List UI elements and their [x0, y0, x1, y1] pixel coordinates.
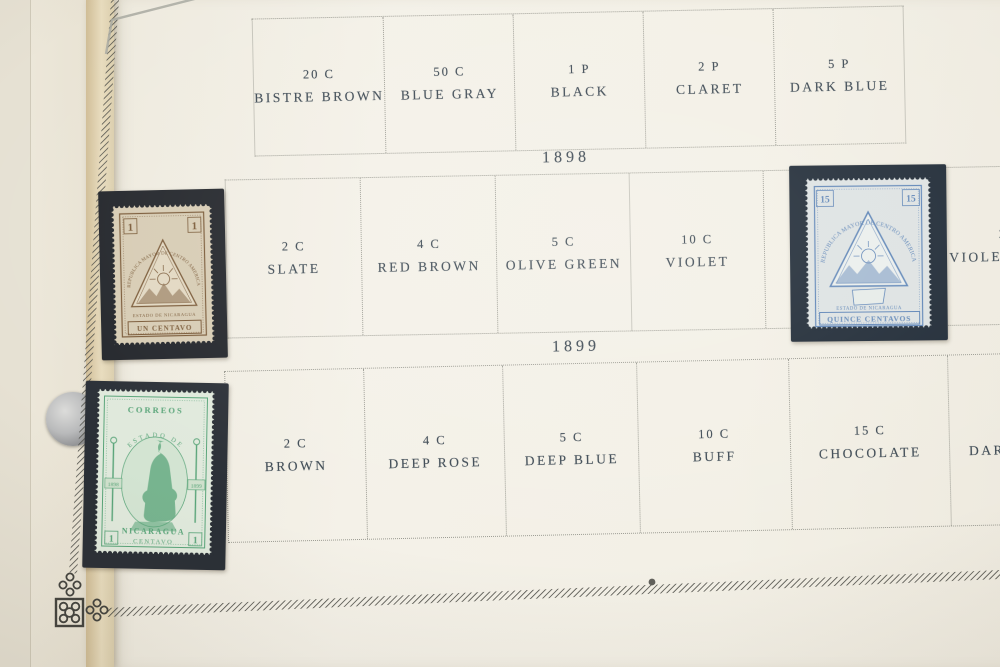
- cell-color: BLACK: [551, 83, 610, 100]
- stamp-green-1c: CORREOS ESTADO DE 1898 1899 NICARAGUA CE…: [82, 381, 229, 571]
- spec-row-top: 20 C BISTRE BROWN 50 C BLUE GRAY 1 P BLA…: [252, 5, 907, 156]
- stamp-album-photo: 1897 20 C BISTRE BROWN 50 C BLUE GRAY 1 …: [0, 0, 1000, 667]
- spec-cell: 5 C OLIVE GREEN: [495, 173, 631, 332]
- stray-corner-line: [106, 0, 206, 54]
- stamp-denomination: 15: [906, 195, 916, 205]
- spec-cell: 15 C CHOCOLATE: [788, 356, 951, 530]
- cell-color: OLIVE GREEN: [506, 255, 623, 273]
- cell-color: SLATE: [267, 260, 320, 277]
- spec-cell: 50 C BLUE GRAY: [383, 14, 516, 153]
- cell-color: VIOLET BROWN: [949, 247, 1000, 265]
- spec-row-1899: 2 C BROWN 4 C DEEP ROSE 5 C DEEP BLUE 10…: [224, 351, 1000, 543]
- cell-color: CHOCOLATE: [819, 444, 922, 462]
- cell-value: 10 C: [698, 427, 730, 443]
- cell-color: DARK BLUE: [790, 78, 890, 96]
- cell-value: 5 C: [552, 234, 576, 249]
- cell-value: 50 C: [433, 64, 465, 80]
- cell-value: 2 C: [284, 436, 308, 452]
- corner-ornament: [56, 573, 108, 626]
- stamp-denomination: 1: [128, 222, 134, 234]
- spec-cell: 5 C DEEP BLUE: [502, 363, 640, 536]
- spec-cell-clipped: 20 C DARK VIOLET: [947, 352, 1000, 525]
- cell-value: 15 C: [854, 423, 886, 439]
- spec-cell: 4 C RED BROWN: [359, 176, 497, 335]
- stamp-denomination: 15: [820, 195, 830, 205]
- cell-value: 2 C: [282, 239, 306, 254]
- cell-color: BUFF: [693, 448, 737, 465]
- spec-cell: 1 P BLACK: [513, 12, 646, 151]
- spec-cell: 2 C SLATE: [226, 178, 362, 337]
- cell-color: VIOLET: [666, 253, 730, 270]
- cell-color: BISTRE BROWN: [254, 88, 384, 107]
- stamp-value-text: UN CENTAVO: [137, 324, 192, 333]
- spec-cell: 2 C BROWN: [225, 369, 367, 542]
- spec-cell: 5 P DARK BLUE: [773, 6, 906, 145]
- spec-cell: 10 C BUFF: [636, 359, 791, 532]
- stamp-denomination: 1: [109, 535, 114, 545]
- cell-color: DEEP BLUE: [525, 451, 620, 469]
- stamp-value-text: CENTAVO: [133, 538, 173, 546]
- cell-value: 4 C: [423, 433, 447, 449]
- cell-color: DARK VIOLET: [969, 440, 1000, 459]
- cell-value: 10 C: [681, 232, 713, 248]
- stamp-year-right: 1899: [191, 484, 202, 490]
- cell-value: 20 C: [303, 67, 335, 83]
- cell-color: CLARET: [676, 81, 744, 98]
- spec-cell-clipped: 20 C VIOLET BROWN: [941, 166, 1000, 326]
- stamp-denomination: 1: [192, 220, 198, 232]
- cell-value: 5 P: [828, 57, 851, 72]
- stamp-denomination: 1: [193, 536, 198, 546]
- cell-value: 2 P: [698, 59, 721, 74]
- bottom-border-band: [106, 570, 1000, 617]
- stamp-top-text: CORREOS: [128, 404, 184, 415]
- spec-cell: 10 C VIOLET: [629, 171, 765, 330]
- spec-cell: 4 C DEEP ROSE: [363, 366, 507, 539]
- stamp-brown-1c: 1 1 REPUBLICA MAYOR DE CENTRO AMERICA ES…: [98, 189, 228, 361]
- cell-color: BROWN: [265, 458, 328, 475]
- stamp-country-text: NICARAGUA: [122, 526, 185, 536]
- stamp-blue-15c: 15 15 REPUBLICA MAYOR DE CENTRO AMERICA …: [789, 164, 948, 342]
- flag-icon: [852, 288, 885, 305]
- cell-color: RED BROWN: [378, 258, 481, 276]
- stamp-banner-text: ESTADO DE NICARAGUA: [836, 306, 902, 312]
- cell-color: BLUE GRAY: [401, 86, 499, 104]
- spec-cell: 2 P CLARET: [643, 9, 776, 148]
- cell-value: 4 C: [417, 236, 441, 251]
- cell-value: 1 P: [568, 62, 591, 77]
- cell-value: 5 C: [559, 430, 583, 446]
- band-smudge: [649, 579, 656, 586]
- cell-color: DEEP ROSE: [388, 454, 482, 472]
- spec-cell: 20 C BISTRE BROWN: [253, 17, 386, 156]
- stamp-year-left: 1898: [108, 482, 119, 488]
- stamp-value-text: QUINCE CENTAVOS: [827, 314, 911, 324]
